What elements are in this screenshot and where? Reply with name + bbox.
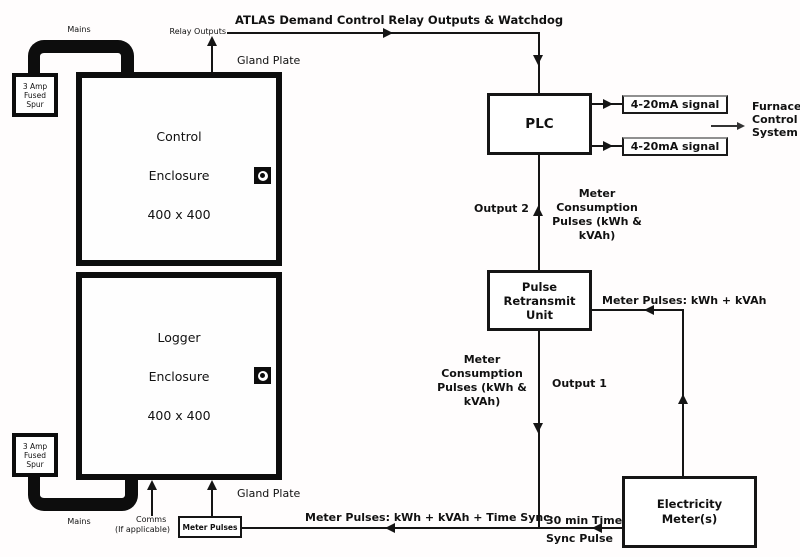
furnace-arrow-line xyxy=(711,125,739,127)
fused-spur-top-line: Fused xyxy=(24,91,46,100)
meter-consumption-upper-label: Meter Consumption Pulses (kWh & kVAh) xyxy=(550,187,644,243)
arrowhead-right xyxy=(603,99,613,109)
mains-conduit-top xyxy=(28,40,134,74)
arrowhead-up xyxy=(678,394,688,404)
mains-label-bottom: Mains xyxy=(60,517,98,526)
pulse-retransmit-unit-box: Pulse Retransmit Unit xyxy=(487,270,592,331)
wiring-diagram: 3 Amp Fused Spur 3 Amp Fused Spur Mains … xyxy=(0,0,800,557)
meter-consumption-line: kVAh) xyxy=(436,395,528,409)
comms-arrow-line xyxy=(151,488,153,516)
logger-enclosure-label: Logger xyxy=(157,330,200,345)
fused-spur-bottom-line: 3 Amp xyxy=(23,442,47,451)
meter-pulses-box-label: Meter Pulses xyxy=(183,523,238,532)
signal-box-bottom-label: 4-20mA signal xyxy=(631,140,720,153)
meter-consumption-line: kVAh) xyxy=(550,229,644,243)
diagram-title: ATLAS Demand Control Relay Outputs & Wat… xyxy=(235,13,545,27)
arrowhead-up xyxy=(207,36,217,46)
fused-spur-bottom-line: Spur xyxy=(26,460,43,469)
time-sync-label: 30 min Time xyxy=(546,514,622,527)
relay-outputs-label: Relay Outputs xyxy=(158,27,226,36)
meter-pulses-right-label: Meter Pulses: kWh + kVAh xyxy=(602,294,766,307)
fused-spur-top-line: 3 Amp xyxy=(23,82,47,91)
logger-enclosure: Logger Enclosure 400 x 400 xyxy=(76,272,282,480)
pru-label-line: Unit xyxy=(526,308,553,322)
door-lock-icon xyxy=(254,167,271,184)
meter-pulses-arrow-line xyxy=(211,488,213,516)
pru-label-line: Retransmit xyxy=(503,294,575,308)
time-sync-label: Sync Pulse xyxy=(546,532,613,545)
comms-label: Comms xyxy=(136,515,166,524)
meter-consumption-line: Meter xyxy=(550,187,644,201)
output2-label: Output 2 xyxy=(474,202,529,215)
arrowhead-left xyxy=(592,523,602,533)
meter-feed-line-vertical xyxy=(682,309,684,476)
gland-plate-label-bottom: Gland Plate xyxy=(237,487,300,500)
mains-conduit-bottom xyxy=(28,475,138,511)
arrowhead-down xyxy=(533,423,543,433)
door-lock-icon xyxy=(254,367,271,384)
furnace-control-system-label: Furnace Control System xyxy=(752,100,800,139)
fused-spur-bottom: 3 Amp Fused Spur xyxy=(12,433,58,477)
logger-enclosure-size: 400 x 400 xyxy=(147,408,210,423)
electricity-meters-box: Electricity Meter(s) xyxy=(622,476,757,548)
plc-label: PLC xyxy=(525,116,553,132)
arrowhead-up xyxy=(147,480,157,490)
gland-plate-label-top: Gland Plate xyxy=(237,54,300,67)
fused-spur-bottom-line: Fused xyxy=(24,451,46,460)
fused-spur-top: 3 Amp Fused Spur xyxy=(12,73,58,117)
fused-spur-top-line: Spur xyxy=(26,100,43,109)
arrowhead-right xyxy=(383,28,393,38)
meter-consumption-line: Pulses (kWh & xyxy=(436,381,528,395)
control-enclosure-size: 400 x 400 xyxy=(147,207,210,222)
meter-feed-line-horizontal xyxy=(592,309,684,311)
arrowhead-right xyxy=(737,122,745,130)
signal-box-bottom: 4-20mA signal xyxy=(622,137,728,156)
meter-pulses-box: Meter Pulses xyxy=(178,516,242,538)
arrowhead-left xyxy=(385,523,395,533)
meters-label-line: Electricity xyxy=(657,497,722,512)
arrowhead-right xyxy=(603,141,613,151)
meter-consumption-line: Meter xyxy=(436,353,528,367)
arrowhead-left xyxy=(644,305,654,315)
furnace-label-line: System xyxy=(752,126,800,139)
signal-box-top-label: 4-20mA signal xyxy=(631,98,720,111)
meter-consumption-line: Consumption xyxy=(550,201,644,215)
control-enclosure-label: Enclosure xyxy=(149,168,210,183)
logger-enclosure-label: Enclosure xyxy=(149,369,210,384)
meter-pulses-bottom-label: Meter Pulses: kWh + kVAh + Time Sync xyxy=(305,511,550,524)
control-enclosure: Control Enclosure 400 x 400 xyxy=(76,72,282,266)
arrowhead-up xyxy=(533,206,543,216)
bottom-pulse-line xyxy=(242,527,622,529)
output1-label: Output 1 xyxy=(552,377,607,390)
mains-label-top: Mains xyxy=(60,25,98,34)
signal-box-top: 4-20mA signal xyxy=(622,95,728,114)
pru-label-line: Pulse xyxy=(522,280,557,294)
furnace-label-line: Furnace xyxy=(752,100,800,113)
arrowhead-up xyxy=(207,480,217,490)
comms-label: (If applicable) xyxy=(115,525,170,534)
arrowhead-down xyxy=(533,55,543,65)
furnace-label-line: Control xyxy=(752,113,800,126)
meter-consumption-line: Consumption xyxy=(436,367,528,381)
plc-box: PLC xyxy=(487,93,592,155)
meter-consumption-lower-label: Meter Consumption Pulses (kWh & kVAh) xyxy=(436,353,528,409)
meter-consumption-line: Pulses (kWh & xyxy=(550,215,644,229)
control-enclosure-label: Control xyxy=(156,129,201,144)
relay-outputs-line xyxy=(211,44,213,72)
meters-label-line: Meter(s) xyxy=(662,512,718,527)
